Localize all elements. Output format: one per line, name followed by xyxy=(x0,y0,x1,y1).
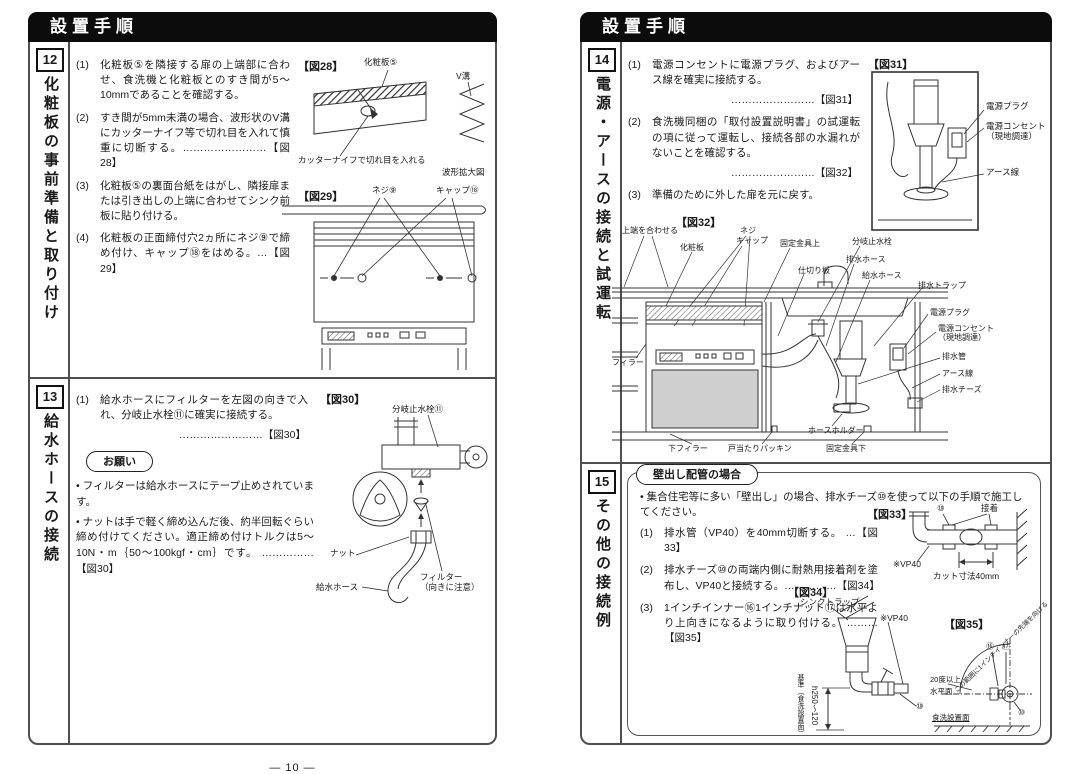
fig34-sink-trap-label: シンクトラップ xyxy=(800,598,860,608)
fig32-bracket-top-label: 固定金具上 xyxy=(780,239,820,248)
fig31: 電源プラグ 電源コンセント （現地調達） アース線 xyxy=(868,70,1044,238)
fig30-nut-label: ナット xyxy=(330,549,356,559)
step-text: 準備のために外した扉を元に戻す。 xyxy=(652,188,860,203)
fig33-tee-num: ⑩ xyxy=(937,504,945,514)
step-text: 食洗機同梱の「取付設置説明書」の試運転の項に従って運転し、接続各部の水漏れがない… xyxy=(652,115,860,161)
fig32-bracket-bottom-label: 固定金具下 xyxy=(826,444,866,453)
fig34-vp40-label: ※VP40 xyxy=(880,614,908,624)
fig32-cap-label: キャップ xyxy=(736,236,768,245)
section-12-number: 12 xyxy=(36,48,64,72)
fig35-label: 【図35】 xyxy=(944,616,989,632)
step-text: 排水管（VP40）を40mm切断する。 …【図33】 xyxy=(664,526,878,556)
fig32-tee-label: 排水チーズ xyxy=(942,385,982,394)
fig35-n16-label: ⑯ xyxy=(986,642,994,651)
fig33-label: 【図33】 xyxy=(867,506,912,522)
fig30: 分岐止水栓⑪ ナット 給水ホース フィルター （向きに注意） xyxy=(316,405,492,619)
step-text: 給水ホースにフィルターを左図の向きで入れ、分岐止水栓⑪に確実に接続する。 xyxy=(100,393,308,423)
fig32-align-top-label: 上端を合わせる xyxy=(622,226,678,235)
fig32-plug-label: 電源プラグ xyxy=(930,308,970,317)
section-14-number: 14 xyxy=(588,48,616,72)
note-item: • フィルターは給水ホースにテープ止めされています。 xyxy=(76,479,314,511)
section-12: 12 化粧板の事前準備と取り付け (1)化粧板⑤を隣接する扉の上端部に合わせ、食… xyxy=(30,42,495,377)
fig33-glue-label: 接着 xyxy=(981,504,998,514)
step-number: (3) xyxy=(76,179,100,225)
fig31-earth-label: アース線 xyxy=(986,168,1019,178)
fig33-vp40-label: ※VP40 xyxy=(893,560,921,570)
fig32-lower-filler-label: 下フィラー xyxy=(668,444,708,453)
fig32-valve-label: 分岐止水栓 xyxy=(852,237,892,246)
fig28-panel-label: 化粧板⑤ xyxy=(364,58,397,68)
fig32: 上端を合わせる ネジ キャップ 化粧板 固定金具上 仕切り板 分岐止水栓 排水ホ… xyxy=(612,226,1042,458)
fig35-n17-label: ⑰ xyxy=(1002,642,1010,651)
page10-number: — 10 — xyxy=(58,762,527,774)
section-14-steps: (1)電源コンセントに電源プラグ、およびアース線を確実に接続する。 ………………… xyxy=(628,58,860,210)
fig32-supply-hose-label: 給水ホース xyxy=(862,271,902,280)
fig35: 【図35】 この範囲に1インチインナーの先端を向ける ⑯ ⑰ 20度以上 水平面… xyxy=(930,614,1040,736)
step: (4)化粧板の正面締付穴2ヵ所にネジ⑨で締め付け、キャップ⑱をはめる。…【図29… xyxy=(76,231,290,277)
fig29: ネジ⑨ キャップ⑱ xyxy=(276,186,490,376)
fig35-horiz-label: 水平面 xyxy=(930,688,953,697)
fig34-tee-num: ⑩ xyxy=(916,702,924,712)
step-text: 化粧板の正面締付穴2ヵ所にネジ⑨で締め付け、キャップ⑱をはめる。…【図29】 xyxy=(100,231,290,277)
step-figure-ref: ……………………【図30】 xyxy=(76,427,306,442)
fig32-drain-pipe-label: 排水管 xyxy=(942,352,966,361)
step-number: (1) xyxy=(76,58,100,104)
fig32-holder-label: ホースホルダー xyxy=(808,426,864,435)
section-12-steps: (1)化粧板⑤を隣接する扉の上端部に合わせ、食洗機と化粧板とのすき間が5～10m… xyxy=(76,58,290,284)
section-15-title: その他の接続例 xyxy=(591,498,613,631)
fig31-outlet-note: （現地調達） xyxy=(986,132,1037,142)
fig28-cut-label: カッターナイフで切れ目を入れる xyxy=(298,156,426,166)
section-13-title: 給水ホースの接続 xyxy=(39,413,61,565)
step-number: (1) xyxy=(628,58,652,88)
fig32-screw-label: ネジ xyxy=(740,226,756,235)
step-text: すき間が5mm未満の場合、波形状のV溝にカッターナイフ等で切れ目を入れて慎重に切… xyxy=(100,111,290,172)
fig34-dim-label: h250～120 xyxy=(810,686,819,725)
fig34-base-label: 基準（食洗設置面） xyxy=(796,674,804,737)
fig28: 化粧板⑤ カッターナイフで切れ目を入れる V溝 波形拡大図 xyxy=(298,56,490,186)
fig32-outlet-note: （現地調達） xyxy=(938,333,986,342)
fig28-vgroove-label: V溝 xyxy=(456,72,470,82)
step: (3)化粧板⑤の裏面台紙をはがし、隣接扉または引き出しの上端に合わせてシンク前板… xyxy=(76,179,290,225)
fig31-plug-label: 電源プラグ xyxy=(986,102,1029,112)
section-12-title: 化粧板の事前準備と取り付け xyxy=(39,76,61,323)
step-number: (1) xyxy=(76,393,100,423)
step-text: 電源コンセントに電源プラグ、およびアース線を確実に接続する。 xyxy=(652,58,860,88)
fig29-screw-label: ネジ⑨ xyxy=(372,186,397,196)
fig32-packing-label: 戸当たりパッキン xyxy=(728,444,792,453)
fig32-filler-label: フィラー xyxy=(612,358,644,367)
note-item: • ナットは手で軽く締め込んだ後、約半回転ぐらい締め付けてください。適正締め付け… xyxy=(76,515,314,578)
step-number: (2) xyxy=(628,115,652,161)
step-number: (3) xyxy=(640,601,664,647)
page10-header-bar: 設置手順 xyxy=(28,12,497,42)
page10-header-title: 設置手順 xyxy=(50,17,138,36)
page11-header-bar: 設置手順 xyxy=(580,12,1052,42)
fig35-angle-label: 20度以上 xyxy=(930,676,961,685)
fig29-cap-label: キャップ⑱ xyxy=(436,186,479,196)
fig32-drain-hose-label: 排水ホース xyxy=(846,255,886,264)
section-14: 14 電源・アースの接続と試運転 (1)電源コンセントに電源プラグ、およびアース… xyxy=(582,42,1050,462)
fig32-earth-label: アース線 xyxy=(942,369,973,378)
fig31-art xyxy=(868,70,1044,238)
step-text: 化粧板⑤の裏面台紙をはがし、隣接扉または引き出しの上端に合わせてシンク前板に貼り… xyxy=(100,179,290,225)
note-pill: お願い xyxy=(86,451,153,472)
fig32-divider-label: 仕切り板 xyxy=(798,266,830,275)
section-13: 13 給水ホースの接続 (1)給水ホースにフィルターを左図の向きで入れ、分岐止水… xyxy=(30,379,495,745)
page-10: 設置手順 12 化粧板の事前準備と取り付け (1)化粧板⑤を隣接する扉の上端部に… xyxy=(28,12,497,745)
step: (1)給水ホースにフィルターを左図の向きで入れ、分岐止水栓⑪に確実に接続する。 xyxy=(76,393,308,423)
step-number: (2) xyxy=(76,111,100,172)
fig32-outlet-label: 電源コンセント xyxy=(938,324,994,333)
section-15-number: 15 xyxy=(588,470,616,494)
fig32-panel-label: 化粧板 xyxy=(680,243,704,252)
fig35-base-label: 食洗設置面 xyxy=(932,714,970,723)
step: (3)準備のために外した扉を元に戻す。 xyxy=(628,188,860,203)
section-13-notes: • フィルターは給水ホースにテープ止めされています。 • ナットは手で軽く締め込… xyxy=(76,479,314,582)
fig28-zoomcap-label: 波形拡大図 xyxy=(442,168,485,178)
section-13-number: 13 xyxy=(36,385,64,409)
step-number: (3) xyxy=(628,188,652,203)
step-number: (4) xyxy=(76,231,100,277)
step: (1)化粧板⑤を隣接する扉の上端部に合わせ、食洗機と化粧板とのすき間が5～10m… xyxy=(76,58,290,104)
section-13-steps: (1)給水ホースにフィルターを左図の向きで入れ、分岐止水栓⑪に確実に接続する。 … xyxy=(76,393,308,450)
step-figure-ref: ……………………【図31】 xyxy=(628,92,858,107)
step: (1)排水管（VP40）を40mm切断する。 …【図33】 xyxy=(640,526,878,556)
step-text: 化粧板⑤を隣接する扉の上端部に合わせ、食洗機と化粧板とのすき間が5～10mmであ… xyxy=(100,58,290,104)
page-11: 設置手順 14 電源・アースの接続と試運転 (1)電源コンセントに電源プラグ、お… xyxy=(580,12,1052,745)
fig32-trap-label: 排水トラップ xyxy=(918,281,966,290)
page11-header-title: 設置手順 xyxy=(602,17,690,36)
section-14-title: 電源・アースの接続と試運転 xyxy=(591,76,613,323)
step-number: (1) xyxy=(640,526,664,556)
fig29-art xyxy=(276,186,490,376)
fig30-filter-note: （向きに注意） xyxy=(420,583,480,593)
step: (2)すき間が5mm未満の場合、波形状のV溝にカッターナイフ等で切れ目を入れて慎… xyxy=(76,111,290,172)
step: (1)電源コンセントに電源プラグ、およびアース線を確実に接続する。 xyxy=(628,58,860,88)
section-15: 15 その他の接続例 壁出し配管の場合 • 集合住宅等に多い「壁出し」の場合、排… xyxy=(582,464,1050,745)
fig30-valve-label: 分岐止水栓⑪ xyxy=(392,405,443,415)
fig35-n10-label: ⑩ xyxy=(1018,708,1025,717)
fig33-cut-dim-label: カット寸法40mm xyxy=(933,572,999,582)
step-number: (2) xyxy=(640,563,664,593)
step-figure-ref: ……………………【図32】 xyxy=(628,165,858,180)
wall-piping-title: 壁出し配管の場合 xyxy=(636,464,758,485)
fig34: 【図34】 シンクトラップ ※VP40 ⑩ h250～120 基準（食洗設置面） xyxy=(788,584,938,736)
manual-scan: { "p10": { "header": "設置手順", "page_numbe… xyxy=(0,0,1080,763)
fig30-hose-label: 給水ホース xyxy=(316,583,358,593)
step: (2)食洗機同梱の「取付設置説明書」の試運転の項に従って運転し、接続各部の水漏れ… xyxy=(628,115,860,161)
